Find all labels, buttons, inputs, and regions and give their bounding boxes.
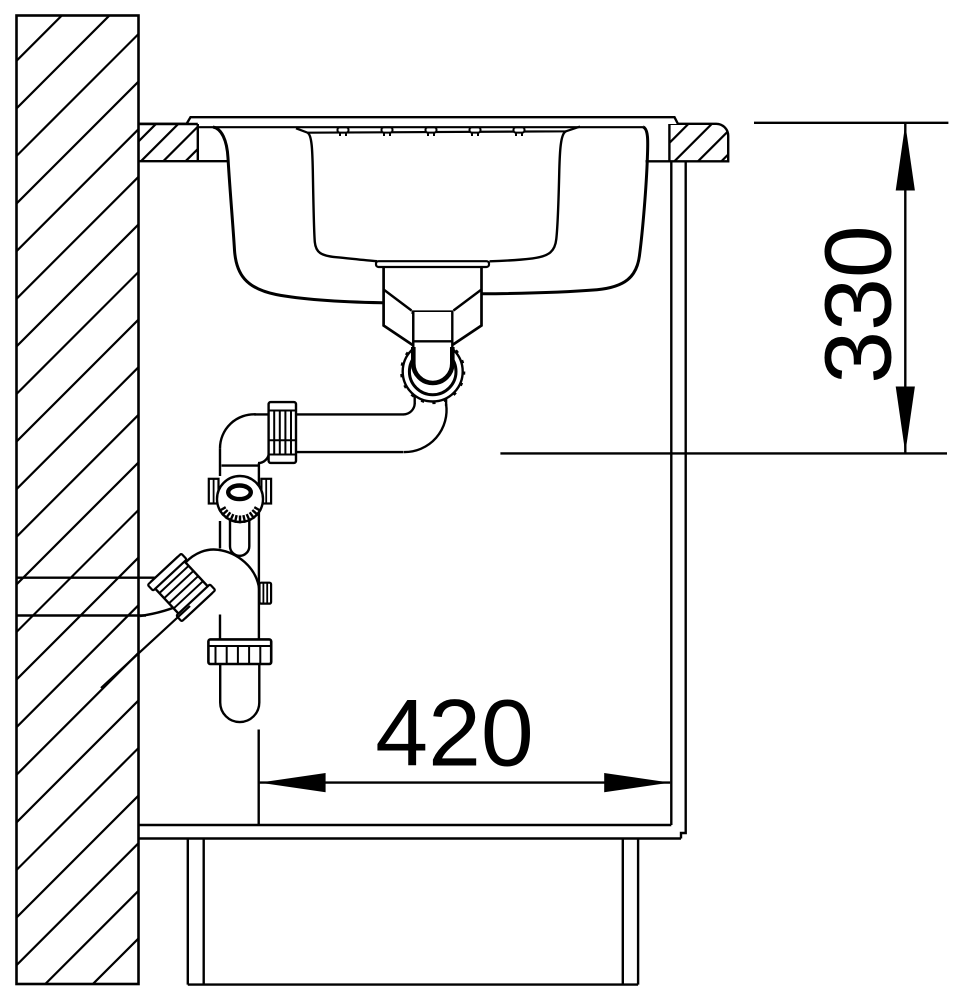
svg-text:420: 420 bbox=[375, 681, 534, 787]
svg-text:330: 330 bbox=[806, 225, 912, 384]
